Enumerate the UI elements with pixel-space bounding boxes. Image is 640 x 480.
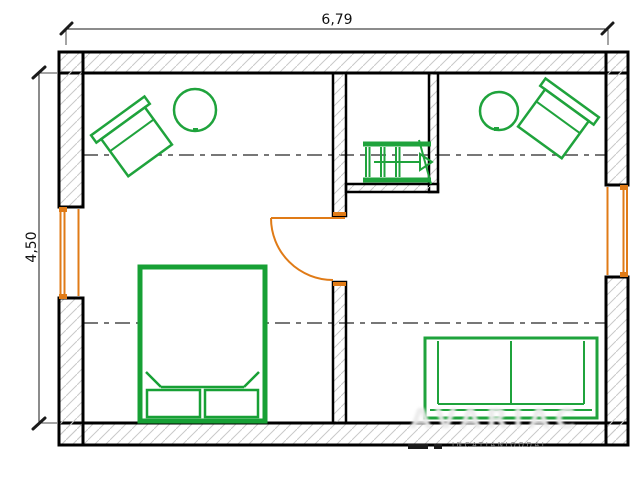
window-frame-end [620, 185, 628, 190]
window-frame-end [59, 207, 67, 212]
watermark-logo-text: AVARIAC [410, 402, 635, 435]
watermark-logo-block [434, 444, 442, 449]
table-foot [494, 127, 499, 131]
wall-left-lower [59, 298, 83, 445]
wall-right-upper [606, 52, 628, 185]
watermark-small-text: INCATIANIOODAI [452, 441, 546, 449]
stair-enclosure-wall-bottom [346, 184, 438, 192]
width-dimension-label: 6,79 [321, 12, 352, 28]
stair-enclosure-wall-right [429, 73, 438, 192]
partition-wall-lower [333, 282, 346, 423]
table-foot [193, 128, 198, 132]
window-frame-end [59, 294, 67, 299]
watermark-logo-block [408, 444, 428, 449]
partition-wall-upper [333, 73, 346, 216]
floor-plan-canvas: 6,79 4,50 [0, 0, 640, 480]
window-frame-end [620, 272, 628, 277]
pillow [205, 390, 258, 417]
door-jamb-cap [333, 212, 346, 216]
double-bed [140, 267, 265, 421]
wall-left-upper [59, 52, 83, 207]
pillow [147, 390, 200, 417]
wall-top [59, 52, 628, 73]
height-dimension-label: 4,50 [24, 231, 40, 262]
door-jamb-cap [333, 282, 346, 286]
